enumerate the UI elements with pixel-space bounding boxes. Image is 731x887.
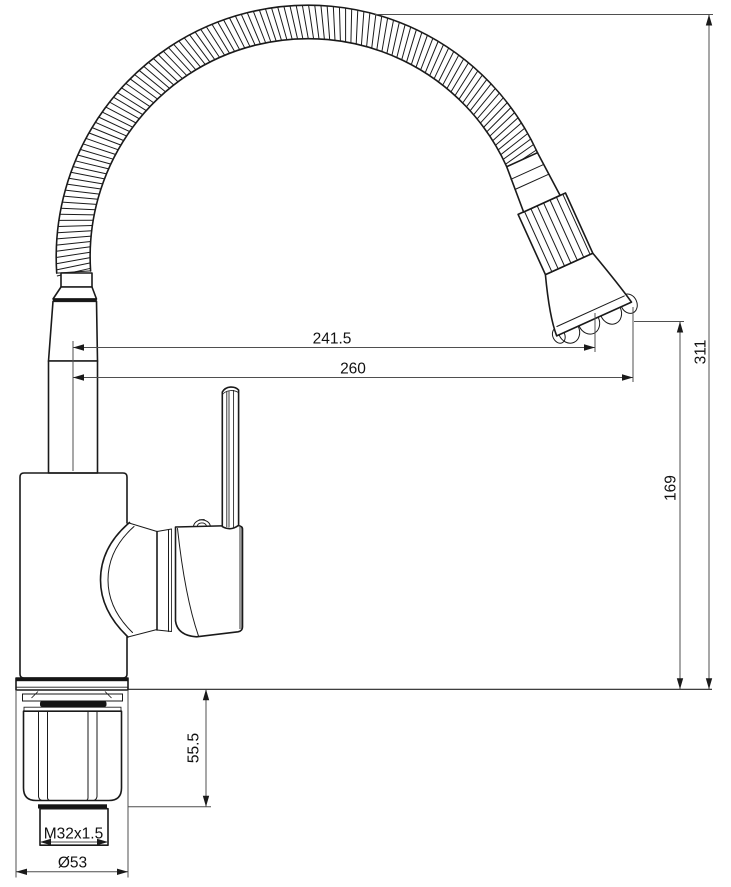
- mounting-nut: [24, 711, 122, 808]
- body-outline: [20, 473, 127, 678]
- dimension-height-to-outlet: 169: [634, 322, 684, 690]
- spray-head: [507, 153, 641, 347]
- handle-lever-rod: [222, 387, 238, 529]
- washer-gasket: [23, 692, 123, 712]
- handle-base-outline: [176, 526, 243, 637]
- hose-outer-edge: [56, 5, 537, 273]
- dim-label-height-overall: 311: [693, 340, 710, 365]
- faucet-technical-drawing: 241.5 260 311 169 55.5 M32x1.5: [0, 0, 731, 887]
- flexible-hose: [56, 5, 537, 276]
- hose-corrugation-ribs: [56, 5, 536, 276]
- dimension-reach-overall: 260: [73, 307, 633, 382]
- dim-label-height-to-outlet: 169: [663, 475, 680, 501]
- mounting-flange: [16, 678, 128, 690]
- valve-joint: [101, 523, 172, 638]
- handle-base: [176, 519, 243, 636]
- dimension-shank-length: 55.5: [128, 689, 211, 807]
- dim-label-reach-to-outlet: 241.5: [313, 331, 352, 348]
- faucet-technical-drawing-page: 241.5 260 311 169 55.5 M32x1.5: [0, 0, 731, 887]
- dimension-reach-to-outlet: 241.5: [73, 313, 595, 471]
- dimension-height-overall: 311: [375, 15, 713, 690]
- hose-collar: [53, 273, 97, 301]
- dim-label-thread: M32x1.5: [44, 826, 103, 843]
- dimension-thread: M32x1.5: [40, 826, 108, 846]
- lever-rod-outline: [222, 387, 238, 529]
- dim-label-shank-length: 55.5: [186, 733, 203, 763]
- dim-label-reach-overall: 260: [340, 361, 366, 378]
- handle-base-contour: [178, 529, 199, 637]
- faucet-body: [20, 473, 127, 678]
- dim-label-base-diameter: Ø53: [58, 855, 87, 872]
